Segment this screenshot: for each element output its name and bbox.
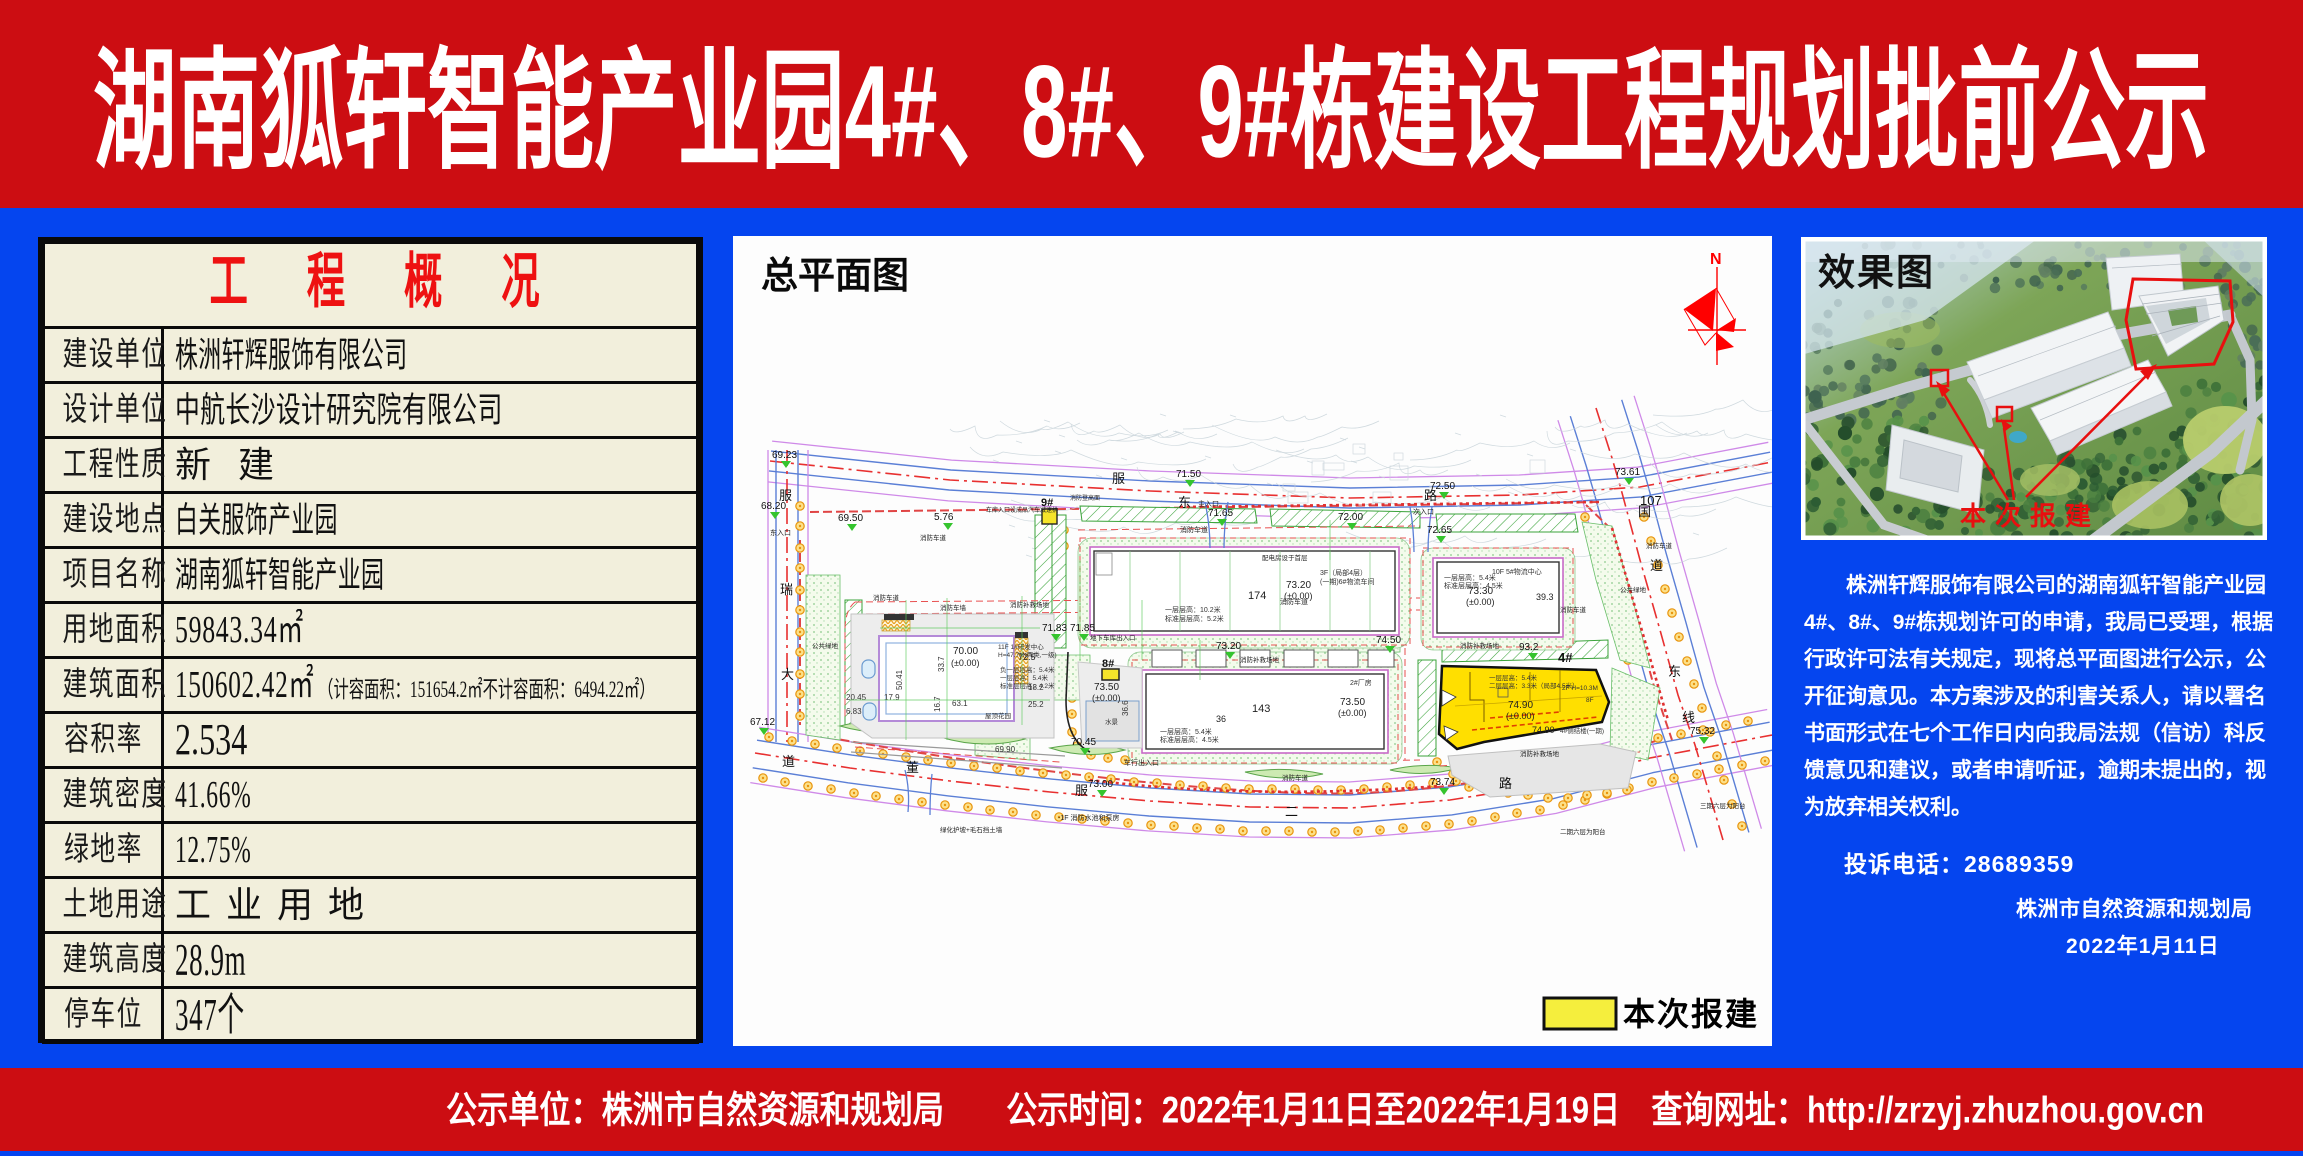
svg-text:一层层高：5.4米: 一层层高：5.4米	[1444, 573, 1496, 582]
svg-text:效果图: 效果图	[1818, 252, 1935, 293]
svg-text:瑞: 瑞	[780, 582, 793, 597]
svg-text:69.23: 69.23	[772, 450, 797, 461]
svg-text:2F H=10.3M: 2F H=10.3M	[1562, 685, 1598, 692]
svg-text:(±0.00): (±0.00)	[1338, 708, 1366, 718]
svg-text:H=47.7M(两类,一级): H=47.7M(两类,一级)	[998, 650, 1057, 659]
svg-text:8F: 8F	[1586, 697, 1594, 704]
svg-text:道: 道	[782, 754, 795, 769]
svg-text:主入口: 主入口	[1198, 499, 1219, 508]
svg-text:三期六层为阳台: 三期六层为阳台	[1700, 801, 1746, 810]
svg-text:大: 大	[781, 667, 794, 682]
svg-text:73.61: 73.61	[1615, 467, 1640, 478]
svg-text:消防车道: 消防车道	[1180, 525, 1208, 534]
svg-text:配电房设于首层: 配电房设于首层	[1262, 553, 1308, 562]
svg-text:本次报建: 本次报建	[1960, 501, 2100, 531]
svg-text:6.83: 6.83	[846, 707, 862, 716]
svg-text:湖南狐轩智能产业园4#、8#、9#栋建设工程规划批前公示: 湖南狐轩智能产业园4#、8#、9#栋建设工程规划批前公示	[93, 38, 2209, 185]
svg-text:16.7: 16.7	[933, 696, 942, 712]
svg-text:次入口: 次入口	[1413, 507, 1434, 516]
svg-text:71.50: 71.50	[1176, 469, 1201, 480]
svg-text:72.00: 72.00	[1338, 512, 1363, 523]
svg-text:标准层层高：4.2米: 标准层层高：4.2米	[1000, 681, 1055, 690]
svg-text:17.9: 17.9	[884, 693, 900, 702]
svg-text:一层层高：5.4米: 一层层高：5.4米	[1160, 727, 1212, 736]
svg-text:一层层高：5.4米: 一层层高：5.4米	[1000, 673, 1049, 682]
svg-text:(±0.00): (±0.00)	[1506, 711, 1534, 721]
svg-text:车行出入口: 车行出入口	[1124, 758, 1159, 767]
svg-text:地下车库出入口: 地下车库出入口	[1090, 633, 1136, 642]
svg-text:4#: 4#	[1558, 650, 1573, 665]
svg-text:本次报建: 本次报建	[1623, 996, 1759, 1032]
svg-text:39.3: 39.3	[1536, 592, 1554, 602]
svg-text:74.90: 74.90	[1532, 725, 1555, 735]
svg-text:(±0.00): (±0.00)	[951, 658, 979, 668]
svg-text:一层层高：5.4米: 一层层高：5.4米	[1489, 673, 1538, 682]
svg-text:公共绿地: 公共绿地	[812, 641, 839, 650]
svg-text:路: 路	[1499, 776, 1512, 791]
svg-text:消防补救场地: 消防补救场地	[1010, 600, 1050, 609]
svg-text:33.7: 33.7	[937, 656, 946, 672]
svg-text:75.32: 75.32	[1690, 726, 1715, 737]
svg-text:36: 36	[1216, 714, 1226, 724]
svg-text:线: 线	[1682, 710, 1695, 725]
svg-text:67.12: 67.12	[750, 717, 775, 728]
svg-text:73.50: 73.50	[1340, 697, 1365, 708]
svg-text:水景: 水景	[1105, 717, 1119, 726]
svg-text:消防车道: 消防车道	[1282, 773, 1309, 782]
svg-text:董: 董	[906, 760, 919, 775]
svg-text:N: N	[1710, 251, 1722, 268]
svg-text:25.2: 25.2	[1028, 700, 1044, 709]
svg-text:73.20: 73.20	[1216, 641, 1241, 652]
svg-text:二: 二	[1285, 804, 1298, 819]
svg-text:消防补救场地: 消防补救场地	[1240, 655, 1280, 664]
svg-text:5.76: 5.76	[934, 512, 954, 523]
svg-text:车库入口设成品汽车减速拱: 车库入口设成品汽车减速拱	[986, 506, 1058, 514]
svg-text:消防车道: 消防车道	[920, 533, 947, 542]
svg-text:74.90: 74.90	[1508, 700, 1533, 711]
svg-text:8#: 8#	[1102, 658, 1114, 670]
svg-text:71.83: 71.83	[1042, 623, 1067, 634]
svg-text:(±0.00): (±0.00)	[1092, 693, 1120, 703]
svg-text:-1F 消防水池和泵房: -1F 消防水池和泵房	[1058, 813, 1119, 822]
svg-text:消防车道: 消防车道	[873, 593, 900, 602]
svg-text:(±0.00): (±0.00)	[1466, 597, 1494, 607]
svg-text:69.90: 69.90	[995, 745, 1016, 754]
svg-text:东: 东	[1178, 495, 1191, 510]
svg-text:73.74: 73.74	[1430, 777, 1455, 788]
svg-text:71.85: 71.85	[1070, 623, 1095, 634]
svg-text:标准层层高：5.2米: 标准层层高：5.2米	[1165, 614, 1224, 623]
svg-text:二期六层为阳台: 二期六层为阳台	[1560, 827, 1606, 836]
svg-text:72.65: 72.65	[1427, 525, 1452, 536]
svg-text:73.00: 73.00	[1088, 779, 1113, 790]
svg-text:东入口: 东入口	[770, 528, 791, 537]
svg-text:11F 1#研发中心: 11F 1#研发中心	[998, 642, 1044, 651]
svg-text:标准层层高：4.5米: 标准层层高：4.5米	[1160, 735, 1219, 744]
svg-text:服: 服	[1075, 783, 1088, 798]
svg-text:20.45: 20.45	[846, 693, 867, 702]
svg-text:143: 143	[1252, 703, 1270, 715]
svg-text:消防车道: 消防车道	[1280, 597, 1308, 606]
svg-text:服: 服	[779, 488, 792, 503]
svg-text:公共绿地: 公共绿地	[1620, 585, 1647, 594]
svg-text:消防车道: 消防车道	[1560, 605, 1587, 614]
svg-text:道: 道	[1650, 558, 1663, 573]
svg-text:路: 路	[1424, 488, 1437, 503]
svg-text:36.6: 36.6	[1121, 700, 1130, 716]
svg-text:负一层层高：5.4米: 负一层层高：5.4米	[1000, 665, 1055, 674]
svg-text:70.45: 70.45	[1071, 737, 1096, 748]
svg-text:屋顶花园: 屋顶花园	[985, 711, 1011, 720]
svg-text:4#侧结楼(一期): 4#侧结楼(一期)	[1560, 726, 1604, 735]
svg-text:2#厂房: 2#厂房	[1350, 678, 1372, 687]
svg-text:消防补救场地: 消防补救场地	[1520, 749, 1560, 758]
svg-text:70.00: 70.00	[953, 646, 978, 657]
svg-text:消防补救场地: 消防补救场地	[1460, 641, 1500, 650]
svg-text:总平面图: 总平面图	[761, 255, 909, 296]
svg-text:(一期)6#物流车间: (一期)6#物流车间	[1320, 577, 1374, 586]
svg-text:69.50: 69.50	[838, 513, 863, 524]
svg-text:一层层高：10.2米: 一层层高：10.2米	[1165, 605, 1221, 614]
svg-text:消防登高面: 消防登高面	[1070, 494, 1100, 502]
svg-text:73.20: 73.20	[1286, 580, 1311, 591]
svg-text:73.50: 73.50	[1094, 682, 1119, 693]
svg-text:公示单位：株洲市自然资源和规划局 公示时间：2022年1月: 公示单位：株洲市自然资源和规划局 公示时间：2022年1月11日至2022年1月…	[446, 1089, 2204, 1131]
svg-text:东: 东	[1668, 664, 1681, 679]
svg-text:107: 107	[1640, 493, 1662, 508]
svg-text:消防车道: 消防车道	[1646, 541, 1673, 550]
svg-text:10F 5#物流中心: 10F 5#物流中心	[1492, 567, 1542, 576]
svg-text:93.2: 93.2	[1519, 642, 1539, 653]
svg-text:标准层层高：4.5米: 标准层层高：4.5米	[1444, 581, 1503, 590]
svg-text:绿化护坡+毛石挡土墙: 绿化护坡+毛石挡土墙	[940, 825, 1003, 834]
svg-text:74.50: 74.50	[1376, 635, 1401, 646]
svg-text:服: 服	[1112, 471, 1125, 486]
svg-text:消防车墙: 消防车墙	[940, 603, 967, 612]
svg-text:50.41: 50.41	[895, 669, 904, 690]
svg-text:3F（局部4层）: 3F（局部4层）	[1320, 568, 1367, 577]
svg-text:174: 174	[1248, 590, 1266, 602]
svg-text:71.65: 71.65	[1208, 508, 1233, 519]
